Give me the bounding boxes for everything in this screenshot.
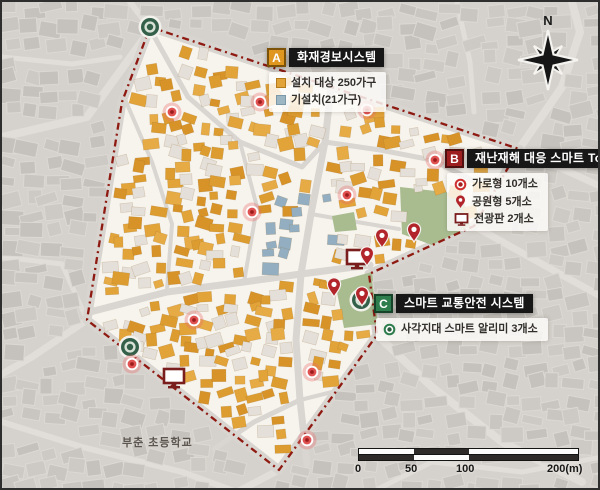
legend-item-label: 가로형 10개소 — [472, 177, 538, 191]
street-toolkit-marker — [298, 431, 317, 450]
legend-traffic-safety: C 스마트 교통안전 시스템 사각지대 스마트 알리미 3개소 — [374, 294, 548, 341]
legend-item-display-board: 전광판 2개소 — [454, 212, 538, 226]
legend-disaster-toolkit: B 재난재해 대응 스마트 Toolkit 가로형 10개소 공원형 5개소 — [445, 149, 600, 231]
legend-b-title: 재난재해 대응 스마트 Toolkit — [467, 149, 600, 168]
street-toolkit-marker — [185, 311, 204, 330]
legend-b-badge: B — [445, 149, 464, 168]
legend-a-items: 설치 대상 250가구 기설치(21가구) — [269, 72, 386, 112]
blue-square-icon — [276, 95, 286, 105]
scale-tick: 200(m) — [547, 463, 582, 475]
display-board-icon — [454, 213, 469, 226]
legend-c-badge: C — [374, 294, 393, 313]
legend-b-title-row: B 재난재해 대응 스마트 Toolkit — [445, 149, 600, 168]
school-name-label: 부춘 초등학교 — [122, 434, 193, 450]
street-toolkit-marker — [243, 203, 262, 222]
legend-item-blind-spot: 사각지대 스마트 알리미 3개소 — [383, 322, 538, 336]
legend-item-label: 설치 대상 250가구 — [291, 76, 376, 90]
scale-tick: 50 — [405, 463, 417, 475]
map-window: N A 화재경보시스템 설치 대상 250가구 기설치(21가구) B 재난재해… — [0, 0, 600, 490]
legend-a-badge: A — [267, 48, 286, 67]
legend-c-title: 스마트 교통안전 시스템 — [396, 294, 533, 313]
orange-square-icon — [276, 78, 286, 88]
street-toolkit-marker — [123, 355, 142, 374]
scale-tick: 100 — [456, 463, 474, 475]
red-pin-icon — [454, 194, 467, 209]
legend-item-label: 전광판 2개소 — [474, 212, 534, 226]
red-circle-dot-icon — [454, 178, 467, 191]
scale-bar-labels: 0 50 100 200(m) — [358, 463, 579, 477]
street-toolkit-marker — [163, 103, 182, 122]
street-toolkit-marker — [303, 363, 322, 382]
legend-c-items: 사각지대 스마트 알리미 3개소 — [376, 318, 548, 341]
street-toolkit-marker — [426, 151, 445, 170]
street-toolkit-marker — [338, 186, 357, 205]
legend-item-already-installed: 기설치(21가구) — [276, 93, 376, 107]
scale-bar-graphic — [358, 448, 579, 461]
legend-item-park-type: 공원형 5개소 — [454, 194, 538, 209]
legend-c-title-row: C 스마트 교통안전 시스템 — [374, 294, 548, 313]
scale-bar: 0 50 100 200(m) — [358, 448, 579, 477]
legend-item-label: 기설치(21가구) — [291, 93, 361, 107]
legend-item-label: 사각지대 스마트 알리미 3개소 — [401, 322, 538, 336]
legend-a-title: 화재경보시스템 — [289, 48, 384, 67]
legend-b-items: 가로형 10개소 공원형 5개소 전광판 2개소 — [447, 173, 548, 231]
legend-item-install-target: 설치 대상 250가구 — [276, 76, 376, 90]
legend-item-street-type: 가로형 10개소 — [454, 177, 538, 191]
legend-fire-alarm-system: A 화재경보시스템 설치 대상 250가구 기설치(21가구) — [267, 48, 386, 112]
scale-tick: 0 — [355, 463, 361, 475]
compass-north-label: N — [543, 13, 552, 28]
legend-item-label: 공원형 5개소 — [472, 195, 532, 209]
green-circle-dot-icon — [383, 323, 396, 336]
blind-spot-notifier-marker — [139, 16, 162, 39]
legend-a-title-row: A 화재경보시스템 — [267, 48, 386, 67]
